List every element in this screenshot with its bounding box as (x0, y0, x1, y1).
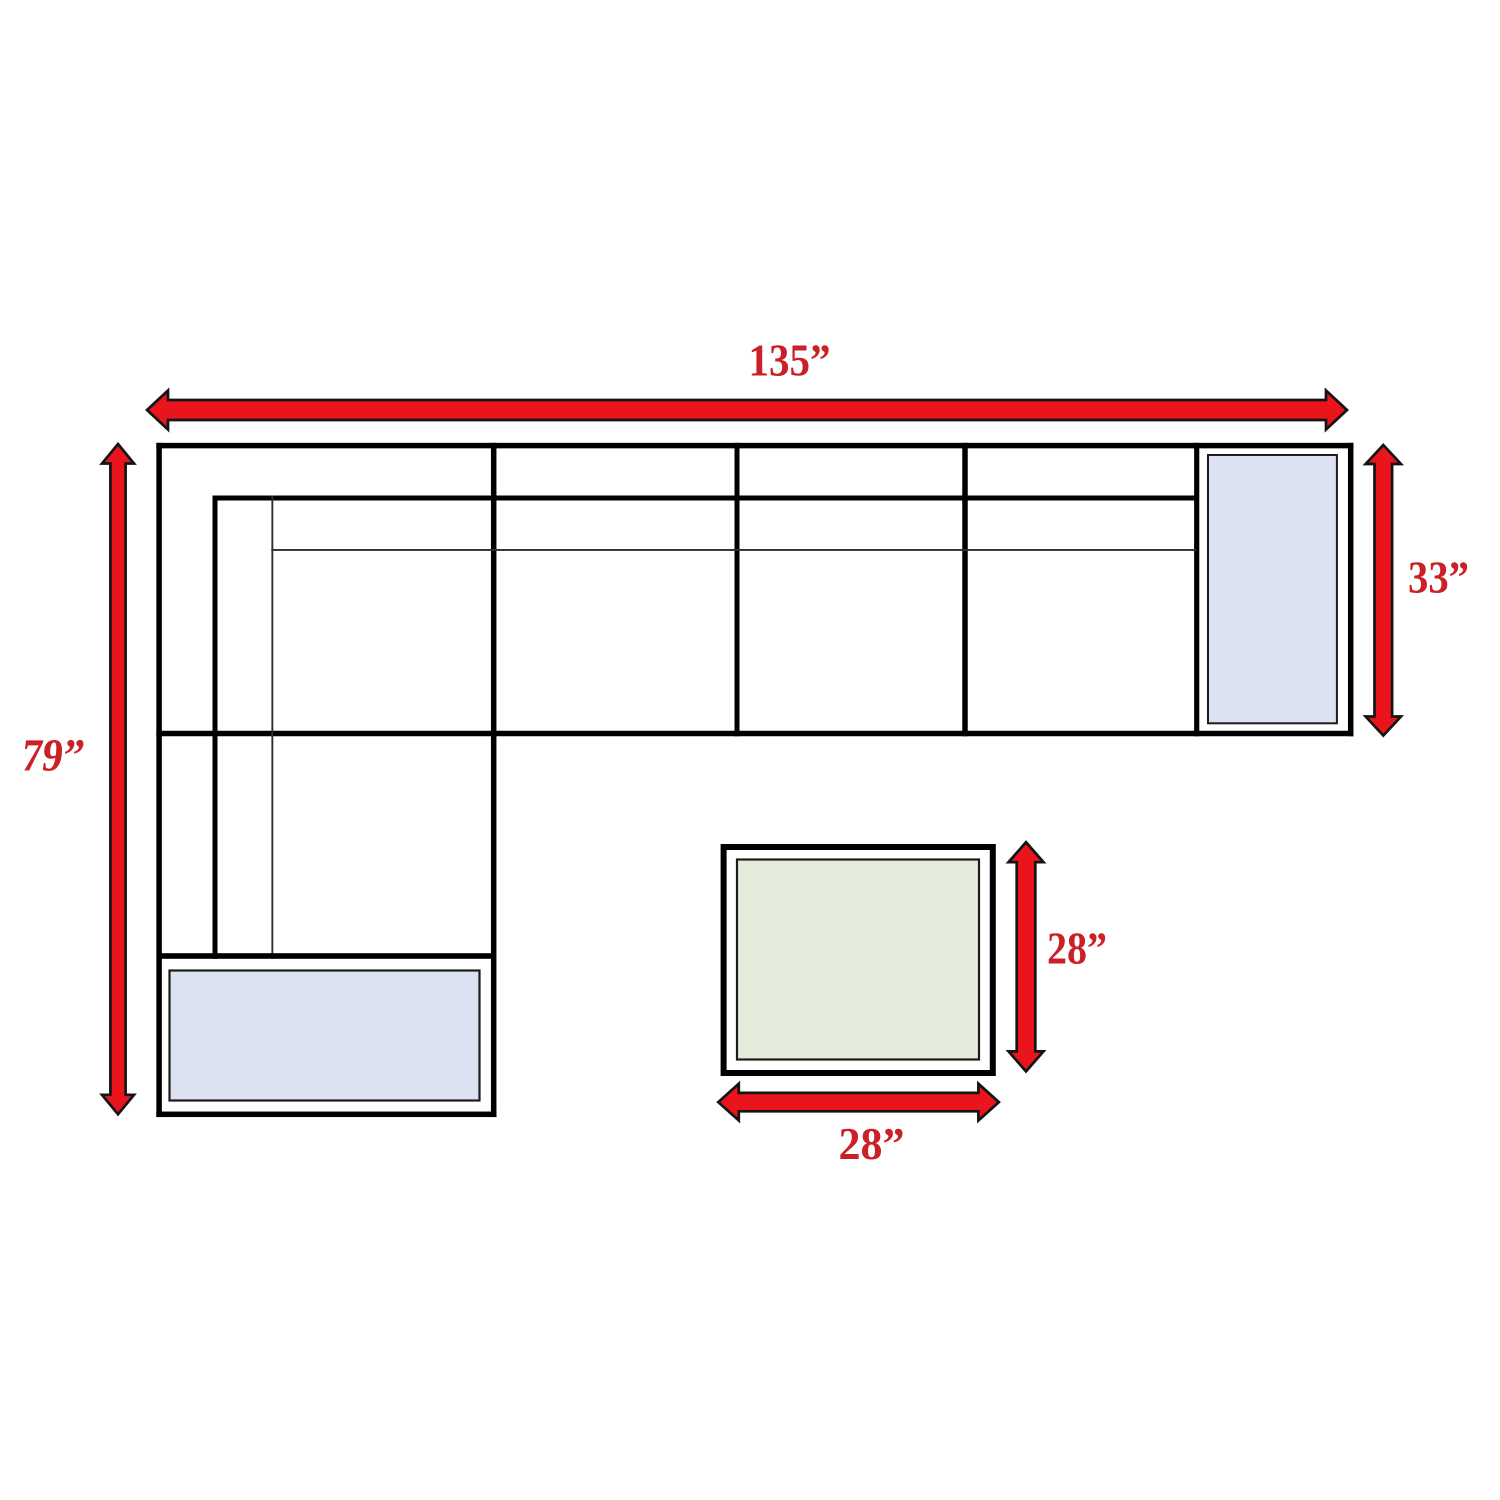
svg-text:28”: 28” (1047, 923, 1107, 974)
svg-text:79”: 79” (19, 730, 87, 781)
svg-text:33”: 33” (1408, 552, 1469, 603)
svg-text:28”: 28” (839, 1118, 905, 1169)
svg-text:135”: 135” (749, 335, 831, 386)
